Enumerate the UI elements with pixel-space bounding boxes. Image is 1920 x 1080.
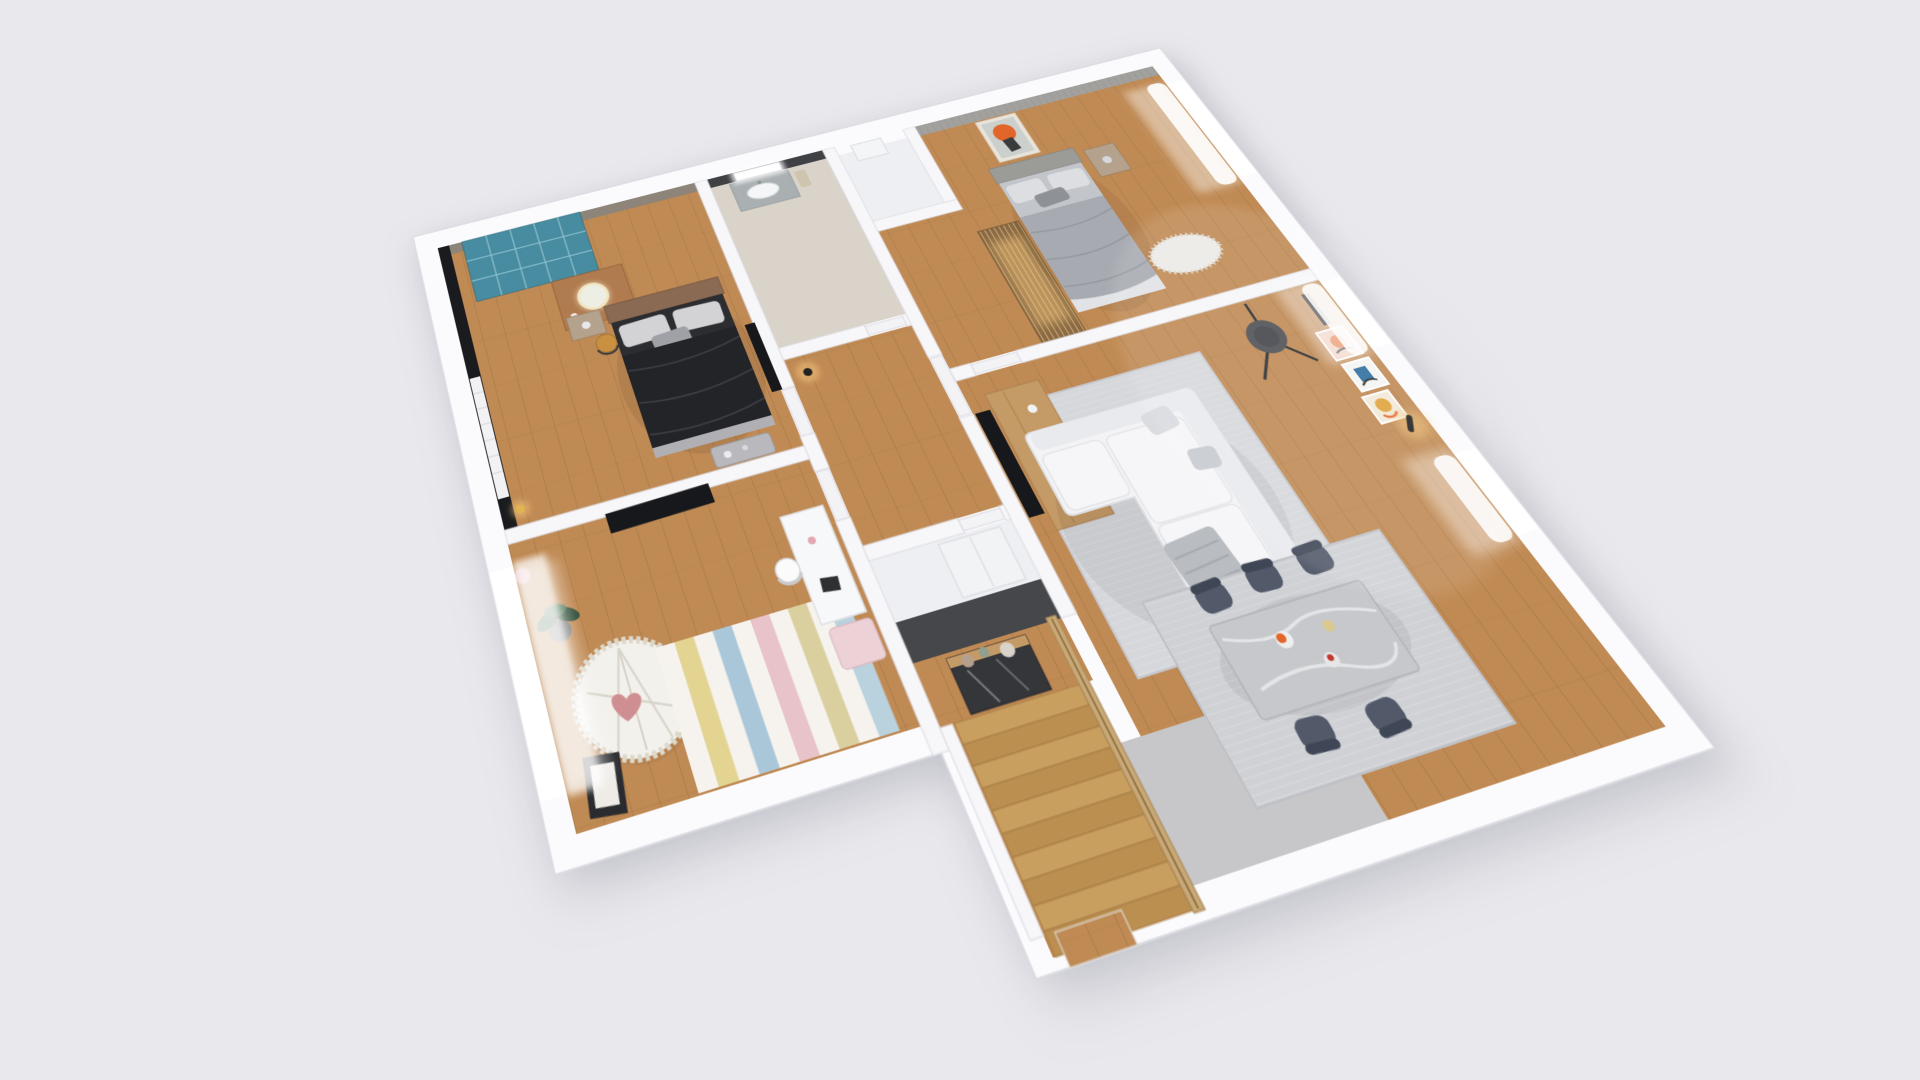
kids-desk-frame	[820, 576, 841, 592]
render-canvas	[0, 0, 1920, 1080]
floorplan-svg	[413, 48, 1715, 1080]
apartment-floorplan	[413, 48, 1715, 1080]
